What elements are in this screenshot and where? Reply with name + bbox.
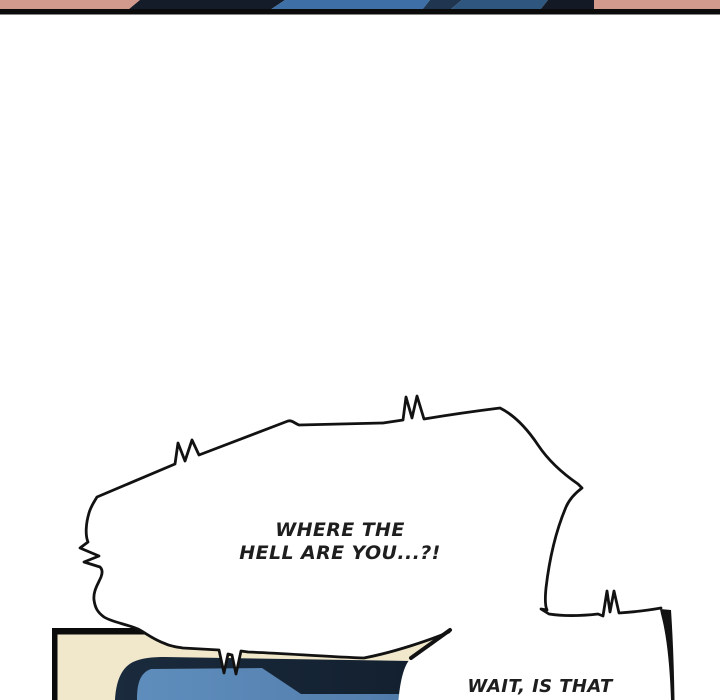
strip-blue-mid (270, 0, 430, 10)
strip-skin-right (594, 0, 720, 10)
comic-artwork (0, 0, 720, 700)
reply-bubble: WAIT, IS THAT (430, 676, 650, 698)
strip-dark-right (540, 0, 602, 10)
strip-dark-left (128, 0, 285, 10)
shout-bubble-text-line1: WHERE THE (180, 519, 500, 542)
reply-bubble-text-line1: WAIT, IS THAT (430, 676, 650, 698)
shout-bubble-text-line2: HELL ARE YOU...?! (180, 542, 500, 565)
strip-blue-right (450, 0, 548, 10)
panel-border-left (52, 628, 58, 700)
comic-page: WHERE THE HELL ARE YOU...?! WAIT, IS THA… (0, 0, 720, 700)
panel-divider-line (0, 9, 720, 15)
previous-panel-strip (0, 0, 720, 15)
shout-bubble: WHERE THE HELL ARE YOU...?! (180, 519, 500, 565)
strip-skin-left (0, 0, 140, 10)
